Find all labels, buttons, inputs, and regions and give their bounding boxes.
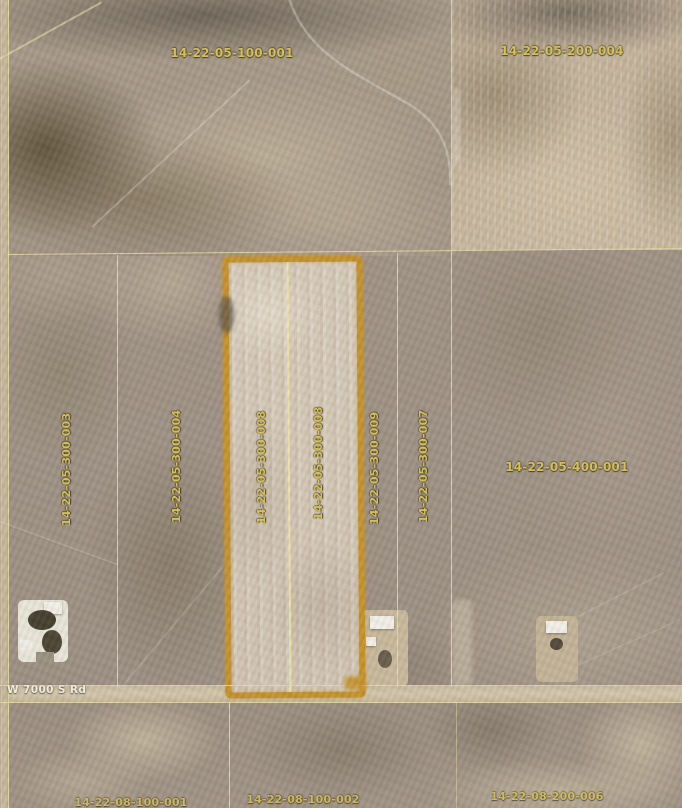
field-track-line xyxy=(0,0,682,260)
parcel-label-400-001: 14-22-05-400-001 xyxy=(467,460,667,474)
farmstead-east xyxy=(536,616,578,682)
building-roof xyxy=(546,621,567,633)
parcel-label-200-004: 14-22-05-200-004 xyxy=(462,44,662,58)
building-roof xyxy=(370,616,394,629)
parcel-label-08-100-002: 14-22-08-100-002 xyxy=(203,793,403,807)
parcel-label-300-008-a: 14-22-05-300-008 xyxy=(255,412,269,524)
parcel-line-vertical xyxy=(451,0,452,687)
building-roof xyxy=(20,640,32,650)
parcel-line-vertical xyxy=(117,255,118,687)
road-edge-line xyxy=(1,0,2,808)
farmstead-middle xyxy=(362,610,408,686)
parcel-split-line xyxy=(286,262,291,692)
building-roof xyxy=(366,637,376,646)
outbuilding xyxy=(36,652,54,664)
highlighted-parcel[interactable] xyxy=(222,256,365,699)
highlight-corner-blob xyxy=(344,676,366,690)
parcel-map[interactable]: W 7000 S Rd 14-22-05-100-001 14-22-05-20… xyxy=(0,0,682,808)
driveway-line xyxy=(455,88,458,164)
road-edge-line xyxy=(0,702,682,703)
tree-canopy xyxy=(28,610,56,630)
parcel-label-100-001: 14-22-05-100-001 xyxy=(132,46,332,60)
road-edge-line xyxy=(0,685,682,686)
parcel-label-300-009: 14-22-05-300-009 xyxy=(368,413,382,525)
tree-canopy xyxy=(550,638,563,650)
parcel-line-vertical xyxy=(397,253,398,687)
light-field-strip xyxy=(452,600,472,686)
tree-canopy xyxy=(378,650,392,668)
parcel-label-08-200-006: 14-22-08-200-006 xyxy=(447,790,647,804)
parcel-label-300-007: 14-22-05-300-007 xyxy=(417,411,431,523)
tree-canopy xyxy=(42,630,62,654)
parcel-label-300-004: 14-22-05-300-004 xyxy=(170,411,184,523)
road-label: W 7000 S Rd xyxy=(7,684,86,696)
farmstead-west xyxy=(14,596,78,670)
parcel-label-300-003: 14-22-05-300-003 xyxy=(60,414,74,526)
dark-terrain-blob xyxy=(219,296,234,334)
parcel-label-08-100-001: 14-22-08-100-001 xyxy=(31,796,231,808)
parcel-label-300-008-b: 14-22-05-300-008 xyxy=(312,408,326,520)
